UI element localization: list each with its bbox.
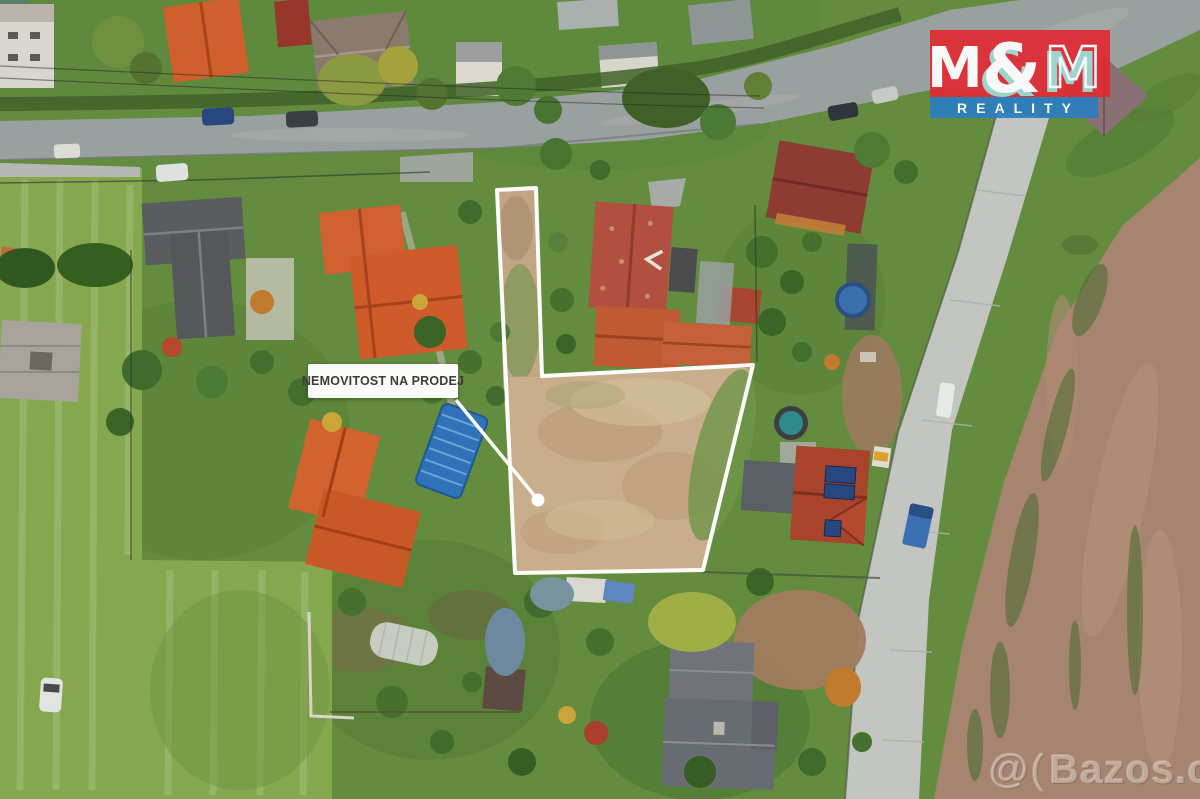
logo-m-left: M: [930, 36, 983, 97]
logo-ampersand: &: [982, 30, 1041, 97]
agency-logo-mark: M & & M M: [930, 30, 1110, 97]
bazos-watermark-text: Bazos.cz: [1049, 746, 1200, 792]
leader-dot: [532, 494, 545, 507]
for-sale-label: NEMOVITOST NA PRODEJ: [308, 364, 458, 398]
bazos-watermark: @(Bazos.cz: [988, 746, 1200, 793]
aerial-photo: [0, 0, 1200, 799]
agency-logo-subtitle-bar: REALITY: [930, 97, 1098, 118]
logo-m-right: M: [1045, 36, 1101, 97]
agency-logo: M & & M M REALITY: [930, 30, 1110, 118]
camera-icon: @(: [988, 746, 1045, 792]
real-estate-aerial-photo: NEMOVITOST NA PRODEJ M & & M M REALITY @…: [0, 0, 1200, 799]
agency-logo-subtitle: REALITY: [948, 101, 1080, 115]
for-sale-label-text: NEMOVITOST NA PRODEJ: [302, 374, 464, 388]
